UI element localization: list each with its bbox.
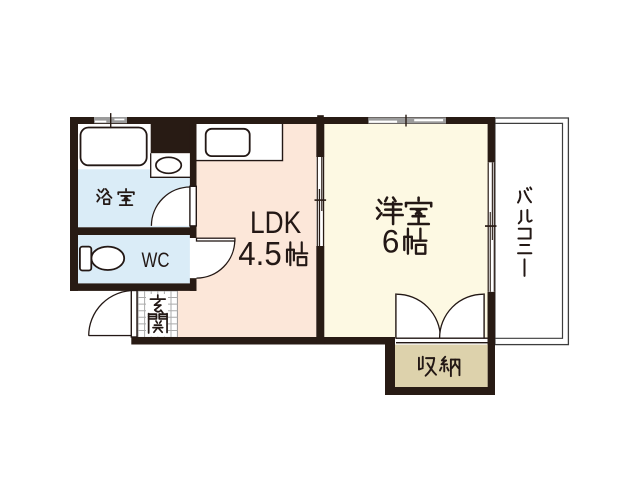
svg-text:6: 6 (382, 224, 400, 260)
svg-text:LDK: LDK (250, 204, 301, 240)
svg-text:4.5: 4.5 (238, 236, 281, 273)
svg-text:WC: WC (142, 249, 170, 272)
